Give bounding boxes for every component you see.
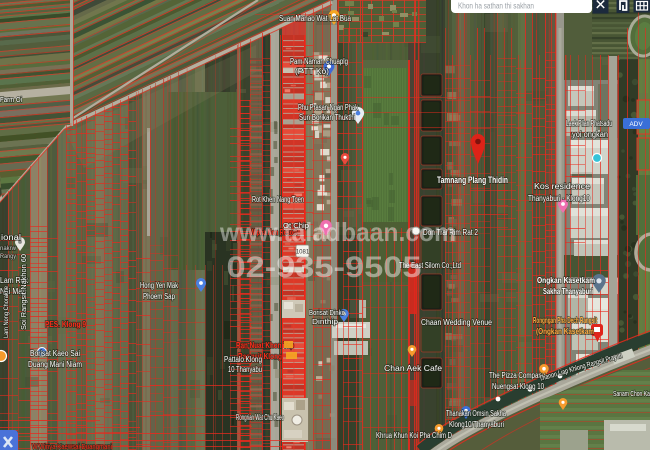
svg-text:Thanyaburi - Klong10: Thanyaburi - Klong10	[528, 193, 590, 203]
svg-text:10 Thanyabu: 10 Thanyabu	[228, 365, 262, 374]
svg-text:W.Wiriya Kaewsai Duangmani: W.Wiriya Kaewsai Duangmani	[32, 442, 112, 450]
svg-text:Farm Oi: Farm Oi	[0, 97, 22, 104]
svg-text:02-935-9505: 02-935-9505	[227, 251, 422, 284]
svg-text:PES. Klong 9: PES. Klong 9	[45, 319, 86, 329]
svg-text:Dinthip: Dinthip	[312, 317, 338, 326]
svg-text:Rangy: Rangy	[0, 253, 17, 260]
svg-text:Rot Khen Nang Toen: Rot Khen Nang Toen	[252, 195, 304, 204]
svg-text:Ongkan Kasetkam: Ongkan Kasetkam	[537, 275, 595, 285]
svg-text:Sun Borikan Thukthi: Sun Borikan Thukthi	[299, 113, 355, 122]
svg-text:Tamnang Plang Thidin: Tamnang Plang Thidin	[437, 175, 508, 186]
svg-text:Duang Mani Niam: Duang Mani Niam	[28, 360, 82, 369]
svg-text:Hong Yen Mak: Hong Yen Mak	[140, 281, 179, 290]
svg-text:Lam Nong Chorakhe: Lam Nong Chorakhe	[3, 286, 10, 338]
svg-text:Nuengsat Klong 10: Nuengsat Klong 10	[492, 382, 544, 391]
svg-text:Sanam Chon Kai: Sanam Chon Kai	[613, 389, 650, 398]
svg-text:The Pizza Company: The Pizza Company	[489, 371, 545, 380]
svg-text:Kos residence: Kos residence	[534, 181, 590, 191]
svg-text:Phu Prasan Ngan Phak: Phu Prasan Ngan Phak	[298, 103, 359, 112]
svg-text:Chan Aek Cafe: Chan Aek Cafe	[384, 363, 442, 373]
svg-text:Klong10/Thanyaburi: Klong10/Thanyaburi	[449, 420, 504, 429]
svg-text:Borisat Dinko: Borisat Dinko	[309, 308, 345, 317]
svg-text:Khrua Khun Koi Pha Chim D: Khrua Khun Koi Pha Chim D	[376, 431, 452, 440]
svg-text:yoi ongkan: yoi ongkan	[572, 130, 608, 139]
svg-text:Sakha Thanyaburi: Sakha Thanyaburi	[543, 286, 593, 296]
svg-text:Pam Naman Chuaplg: Pam Naman Chuaplg	[290, 57, 348, 66]
svg-text:ADV: ADV	[629, 121, 643, 128]
svg-text:(Ongkan Kasetkam: (Ongkan Kasetkam	[536, 326, 594, 336]
svg-text:Laek Plian Phatsadu: Laek Plian Phatsadu	[566, 119, 612, 128]
svg-text:Soi Rangsit-Nakhon 60: Soi Rangsit-Nakhon 60	[21, 254, 28, 330]
svg-text:Phoem Sap: Phoem Sap	[143, 292, 175, 301]
svg-text:ional: ional	[1, 233, 21, 242]
svg-text:www.taladbaan.com: www.taladbaan.com	[219, 217, 456, 247]
svg-text:Pattalo Klong: Pattalo Klong	[224, 355, 262, 364]
svg-text:Rongrian Wat Chu Kaeo: Rongrian Wat Chu Kaeo	[236, 413, 284, 422]
svg-text:(PTT Ko): (PTT Ko)	[295, 67, 329, 76]
svg-text:Borisat Kaeo Sai: Borisat Kaeo Sai	[30, 349, 80, 358]
svg-text:Thanakan Omsin Sakha: Thanakan Omsin Sakha	[446, 409, 506, 418]
svg-text:Chaan Wedding Venue: Chaan Wedding Venue	[421, 317, 492, 327]
svg-text:Rongngan Pha-Dech Rangsit: Rongngan Pha-Dech Rangsit	[533, 315, 597, 325]
svg-text:Suan Manao Wat Lat Bua: Suan Manao Wat Lat Bua	[279, 14, 351, 23]
svg-text:nakrw: nakrw	[0, 245, 16, 252]
svg-text:Khon ha sathan thi sakhan: Khon ha sathan thi sakhan	[458, 1, 534, 11]
